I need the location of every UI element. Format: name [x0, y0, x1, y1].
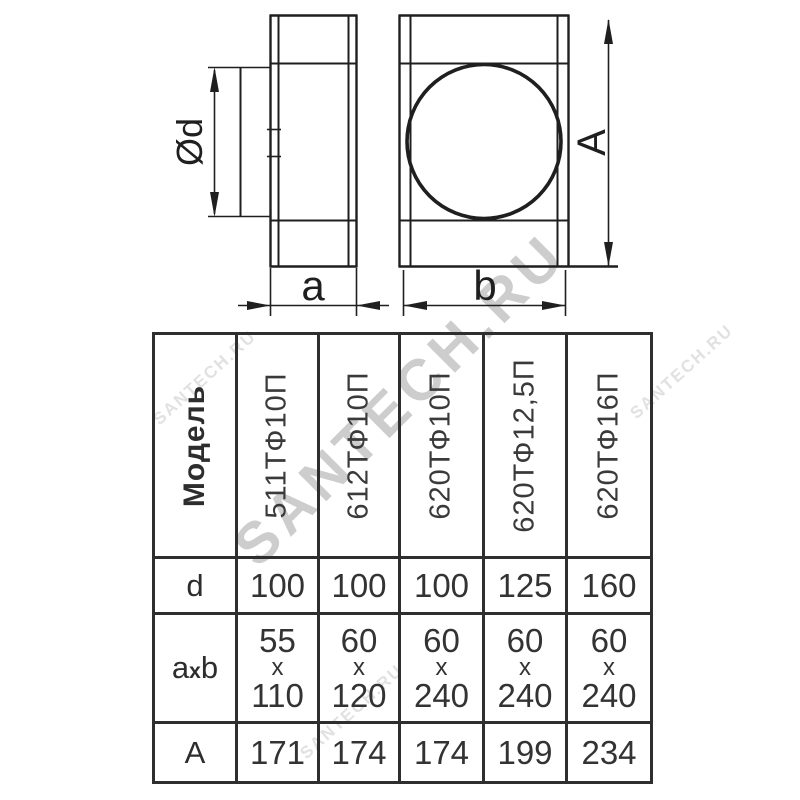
row-label-d: d: [154, 558, 237, 614]
spec-value-cell: 60x240: [484, 614, 567, 723]
spec-value-cell: 100: [400, 558, 484, 614]
dim-label-A: A: [560, 110, 624, 174]
model-header-label: Модель: [178, 384, 212, 506]
dim-label-b: b: [457, 262, 513, 310]
model-header-cell: Модель: [154, 334, 237, 558]
dim-label-diameter: Ød: [158, 110, 222, 174]
row-label-axb: axb: [154, 614, 237, 723]
spec-value-cell: 174: [400, 723, 484, 783]
spec-value-cell: 100: [237, 558, 319, 614]
spec-value-cell: 125: [484, 558, 567, 614]
spec-value-cell: 100: [319, 558, 400, 614]
model-column-header: 511ТФ10П: [237, 334, 319, 558]
spec-value-cell: 199: [484, 723, 567, 783]
spec-value-cell: 60x240: [400, 614, 484, 723]
model-column-header: 612ТФ10П: [319, 334, 400, 558]
spec-value-cell: 171: [237, 723, 319, 783]
technical-drawing: [0, 0, 800, 335]
model-column-header: 620ТФ12,5П: [484, 334, 567, 558]
spec-value-cell: 174: [319, 723, 400, 783]
spec-value-cell: 60x120: [319, 614, 400, 723]
spec-table: Модель 511ТФ10П 612ТФ10П 620ТФ10П 620ТФ1…: [152, 332, 653, 784]
product-drawing-page: SANTECH.RU SANTECH.RU SANTECH.RU SANTECH…: [0, 0, 800, 800]
spec-value-cell: 55x110: [237, 614, 319, 723]
dim-label-a: a: [285, 262, 341, 310]
side-view: [241, 15, 358, 267]
round-duct-opening: [407, 65, 561, 219]
model-column-header: 620ТФ16П: [567, 334, 652, 558]
model-column-header: 620ТФ10П: [400, 334, 484, 558]
row-label-A: A: [154, 723, 237, 783]
spec-value-cell: 160: [567, 558, 652, 614]
spec-value-cell: 60x240: [567, 614, 652, 723]
spec-value-cell: 234: [567, 723, 652, 783]
